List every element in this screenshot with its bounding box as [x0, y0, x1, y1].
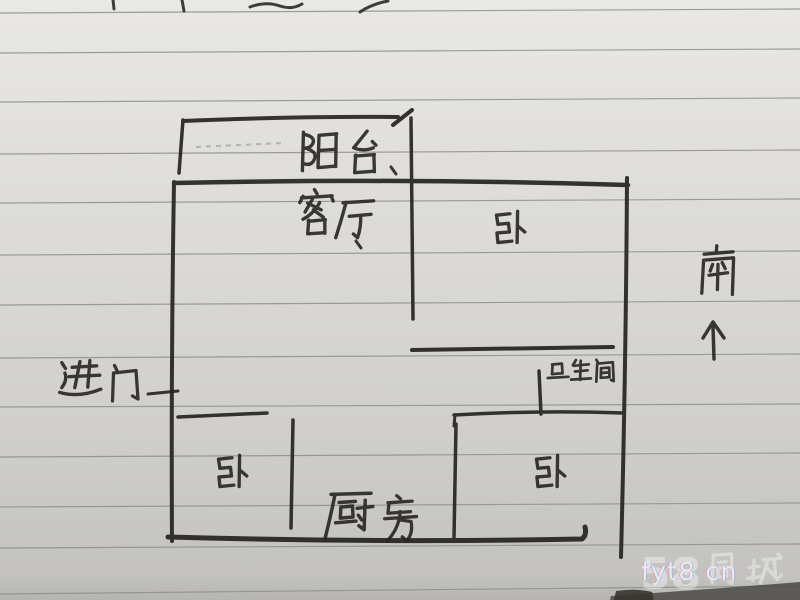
- wall-bedroom-br-top: [454, 412, 623, 415]
- wall-balcony-left: [179, 120, 183, 173]
- stray-pen-marks: [113, 0, 388, 12]
- wall-right: [621, 178, 627, 557]
- watermark-id-text: fyt8 cn: [641, 557, 738, 586]
- notebook-floorplan-photo: 58 fyt8 cn 阳台 客厅 卧 卫生间 进门 卧 厨房 卧 南 58同城: [0, 0, 800, 600]
- ruled-lines: [0, 9, 800, 594]
- wall-balcony-top: [183, 117, 398, 121]
- wall-bottom: [168, 527, 586, 541]
- bedroom-bottom-right-label-glyphs: [536, 455, 564, 486]
- wall-bedroom-bl-top: [178, 413, 267, 417]
- walls: [168, 110, 628, 557]
- living-room-label-glyphs: [300, 190, 374, 248]
- kitchen-label-glyphs: [325, 493, 416, 541]
- wall-left: [172, 182, 174, 541]
- wall-hall-partial: [412, 347, 613, 350]
- wall-bathroom-left: [539, 371, 541, 414]
- wall-bedroom-bl-divider: [291, 420, 293, 528]
- wall-living-bedroom-divider: [411, 118, 413, 319]
- wall-bedroom-br-left: [454, 424, 456, 539]
- bedroom-top-right-label-glyphs: [496, 211, 524, 242]
- south-marker: [702, 246, 734, 359]
- labels: [60, 131, 734, 541]
- faint-dashed-mark: [196, 143, 283, 147]
- watermark-glyph-cheng: [747, 554, 781, 583]
- south-label-glyph: [702, 246, 734, 295]
- wall-top: [174, 181, 628, 185]
- floorplan-drawing: 58: [0, 0, 800, 600]
- bedroom-bottom-left-label-glyphs: [218, 455, 246, 486]
- south-up-arrow-icon: [703, 322, 724, 359]
- entrance-label-glyphs: [60, 361, 138, 401]
- bathroom-label-glyphs: [548, 360, 614, 382]
